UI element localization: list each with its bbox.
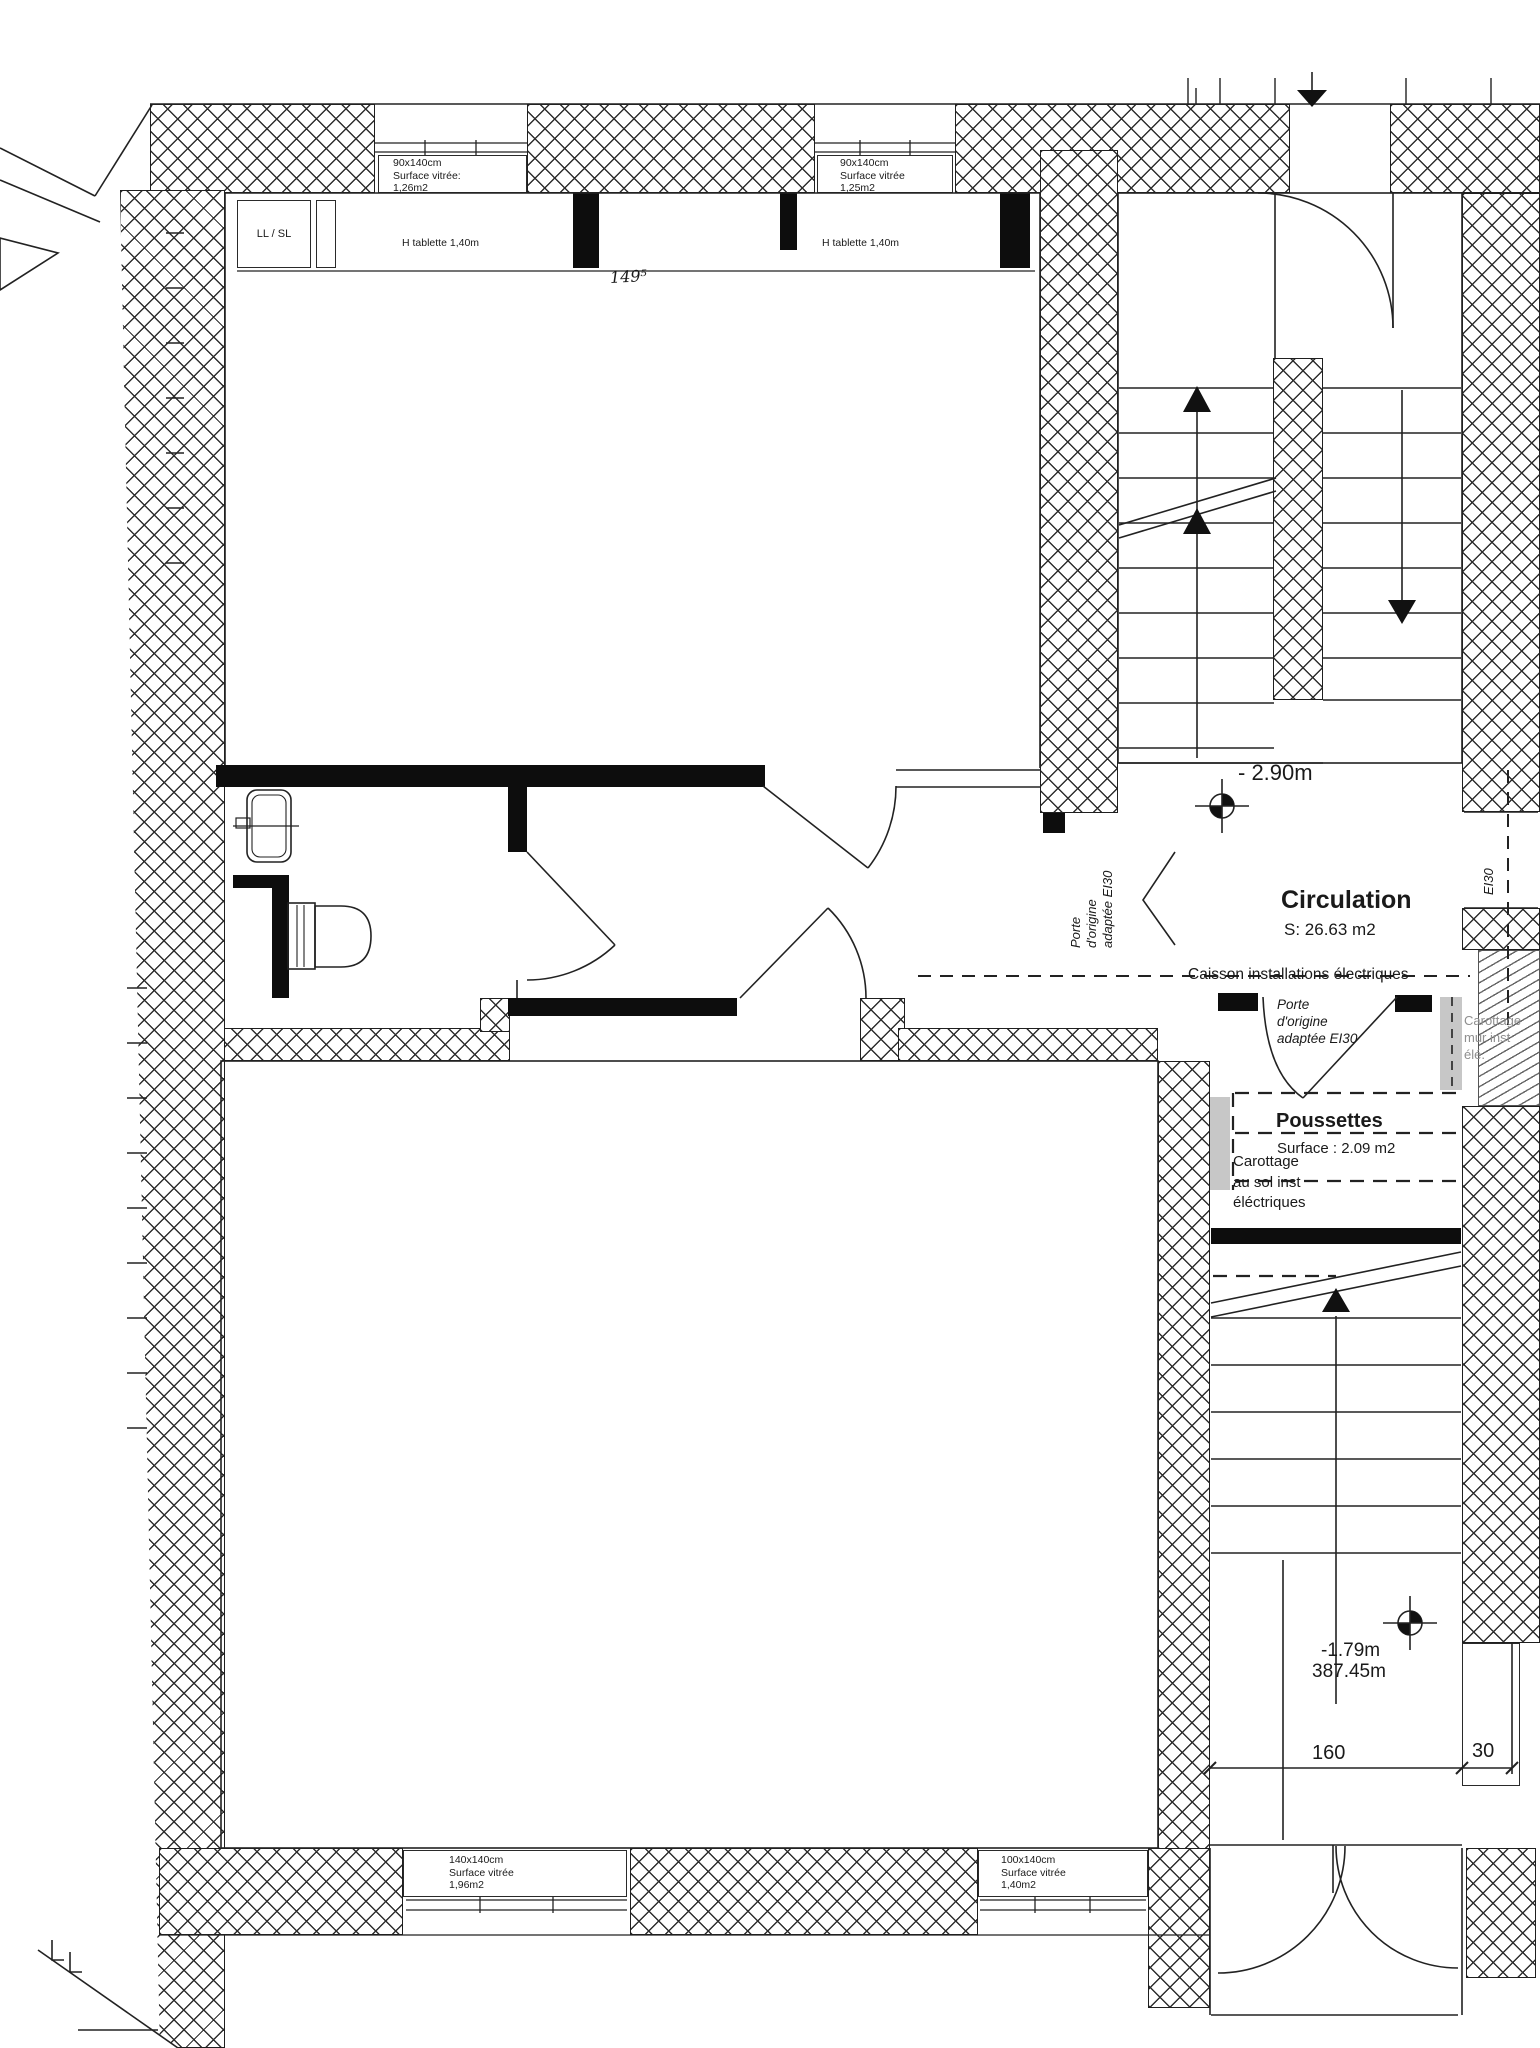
flow-arrow-icon [1297, 72, 1327, 107]
level-marker-circulation [1195, 779, 1249, 833]
level-entry-label: -1.79m [1321, 1640, 1380, 1662]
caisson-note: Caisson installations électriques [1188, 966, 1409, 984]
note-line: éléctriques [1233, 1193, 1306, 1214]
room-circulation-area: S: 26.63 m2 [1284, 920, 1376, 940]
window-sills [159, 140, 1210, 1935]
room-circulation-title: Circulation [1281, 886, 1412, 915]
carottage-sol-note: Carottage au sol inst éléctriques [1233, 1152, 1306, 1214]
corner-bottom-left [38, 1940, 178, 2048]
room2-outline [221, 1061, 1158, 1848]
note-line: élé. [1464, 1046, 1521, 1063]
note-line: au sol inst [1233, 1173, 1306, 1194]
level-upper-label: - 2.90m [1238, 760, 1313, 785]
floor-plan: LL / SL 90x140cm Surface vitrée: 1,26m2 … [0, 0, 1540, 2048]
toilet-fixture [288, 903, 371, 969]
sink-fixture [233, 790, 299, 862]
note-line: mur inst [1464, 1029, 1521, 1046]
entrance-doors [1210, 1845, 1462, 2015]
staircase-lower [1211, 1252, 1461, 1893]
room-poussettes-title: Poussettes [1276, 1110, 1383, 1133]
porte-line: adaptée EI30 [1100, 871, 1116, 948]
note-line: Carottage [1464, 1012, 1521, 1029]
dimension-149-label: 149⁵ [610, 267, 648, 287]
dim-30-label: 30 [1472, 1740, 1494, 1763]
altitude-label: 387.45m [1312, 1661, 1386, 1683]
porte-origine-label-2: Porte d'origine adaptée EI30 [1277, 996, 1357, 1047]
circulation-linework [918, 770, 1538, 1098]
staircase-upper [1119, 193, 1461, 763]
porte-line: d'origine [1084, 871, 1100, 948]
door-chevron [1143, 852, 1175, 945]
tablette-label-1: H tablette 1,40m [402, 237, 479, 250]
porte-line: Porte [1068, 871, 1084, 948]
doors-central [517, 786, 896, 998]
porte-line: d'origine [1277, 1013, 1357, 1030]
stair-down-arrow [1388, 390, 1416, 624]
porte-line: Porte [1277, 996, 1357, 1013]
level-marker-entry [1383, 1596, 1437, 1650]
porte-line: adaptée EI30 [1277, 1030, 1357, 1047]
carottage-mur-note: Carottage mur inst élé. [1464, 1012, 1521, 1063]
dim-160-label: 160 [1312, 1742, 1345, 1765]
porte-origine-label-1: Porte d'origine adaptée EI30 [1068, 871, 1116, 948]
door-ei30-label: EI30 [1482, 868, 1497, 895]
wall-ticks [127, 78, 1491, 1428]
corner-top-left [0, 105, 152, 290]
note-line: Carottage [1233, 1152, 1306, 1173]
tablette-label-2: H tablette 1,40m [822, 237, 899, 250]
landing-door [1258, 193, 1393, 328]
